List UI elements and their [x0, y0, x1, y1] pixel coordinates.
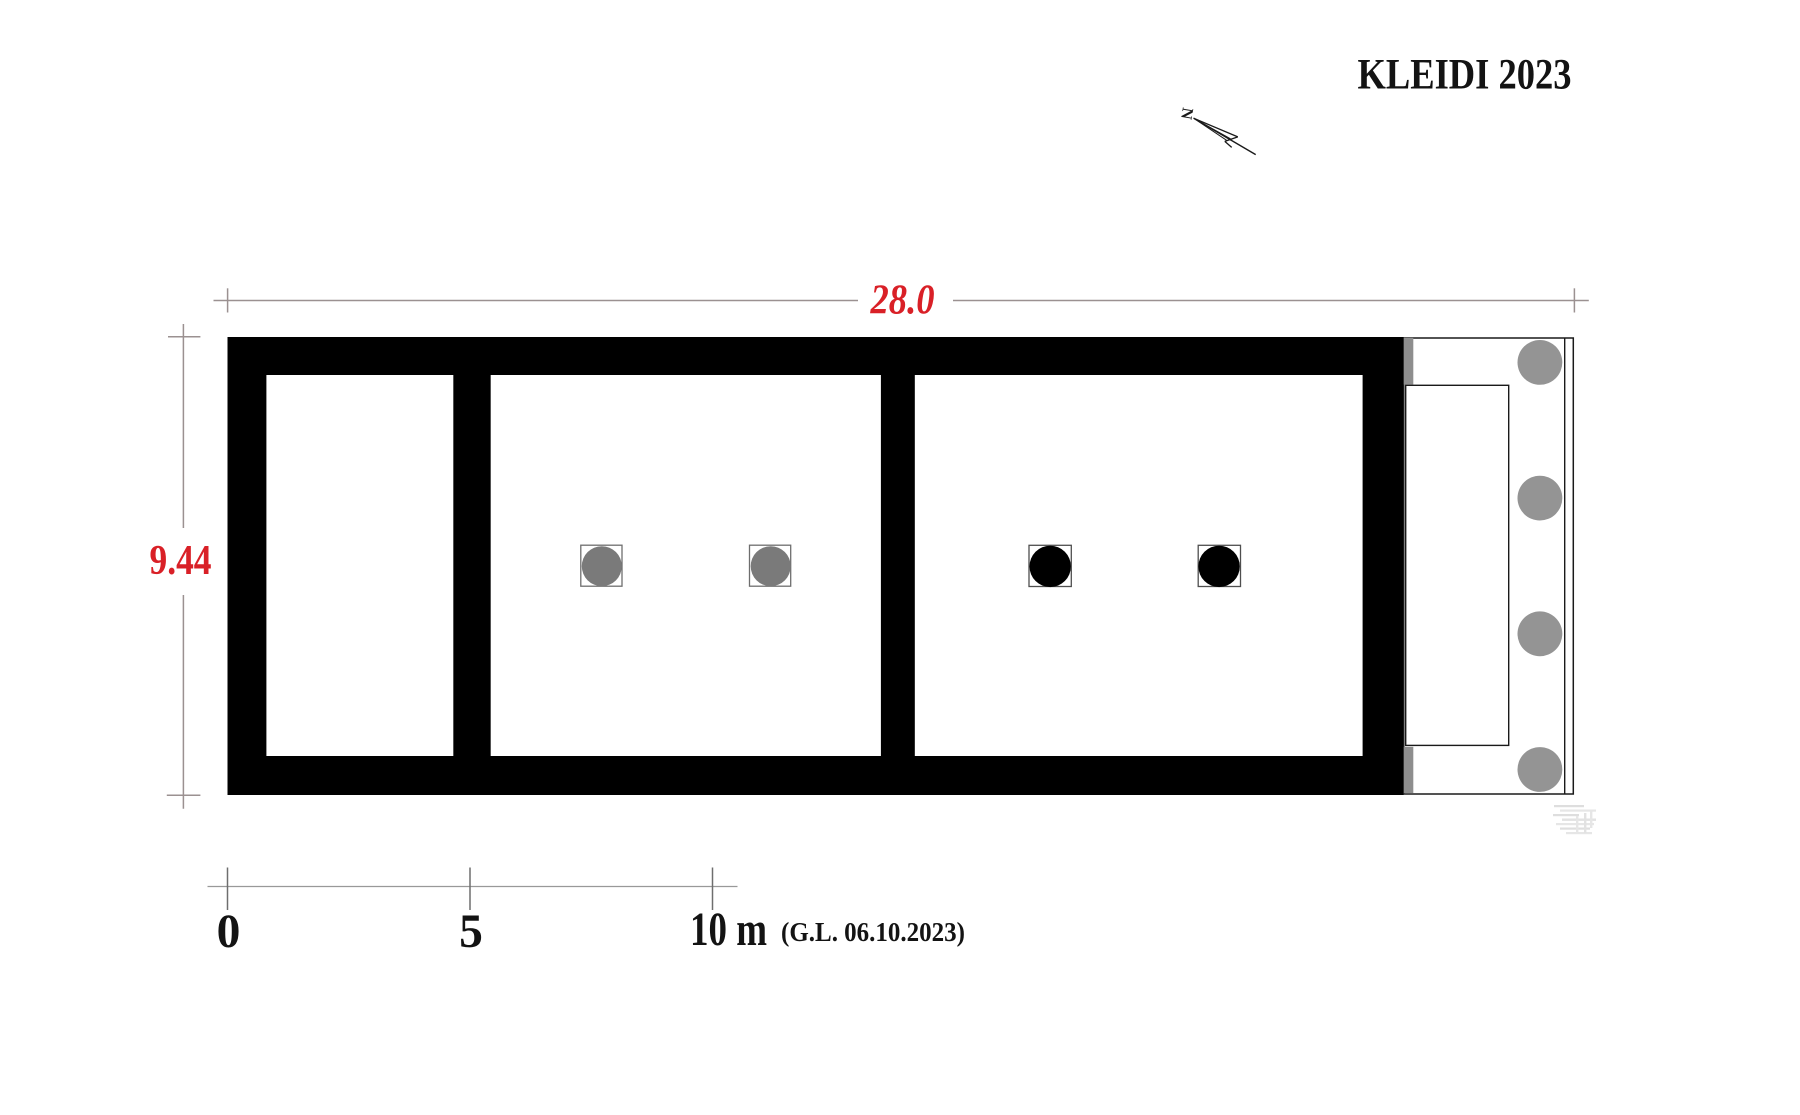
svg-text:KLEIDI 2023: KLEIDI 2023 [1358, 51, 1572, 99]
svg-text:(G.L. 06.10.2023): (G.L. 06.10.2023) [781, 917, 965, 947]
svg-text:9.44: 9.44 [150, 537, 212, 584]
svg-text:0: 0 [217, 906, 241, 958]
svg-text:28.0: 28.0 [870, 278, 935, 324]
svg-text:10 m: 10 m [690, 904, 767, 956]
svg-text:5: 5 [459, 906, 483, 958]
